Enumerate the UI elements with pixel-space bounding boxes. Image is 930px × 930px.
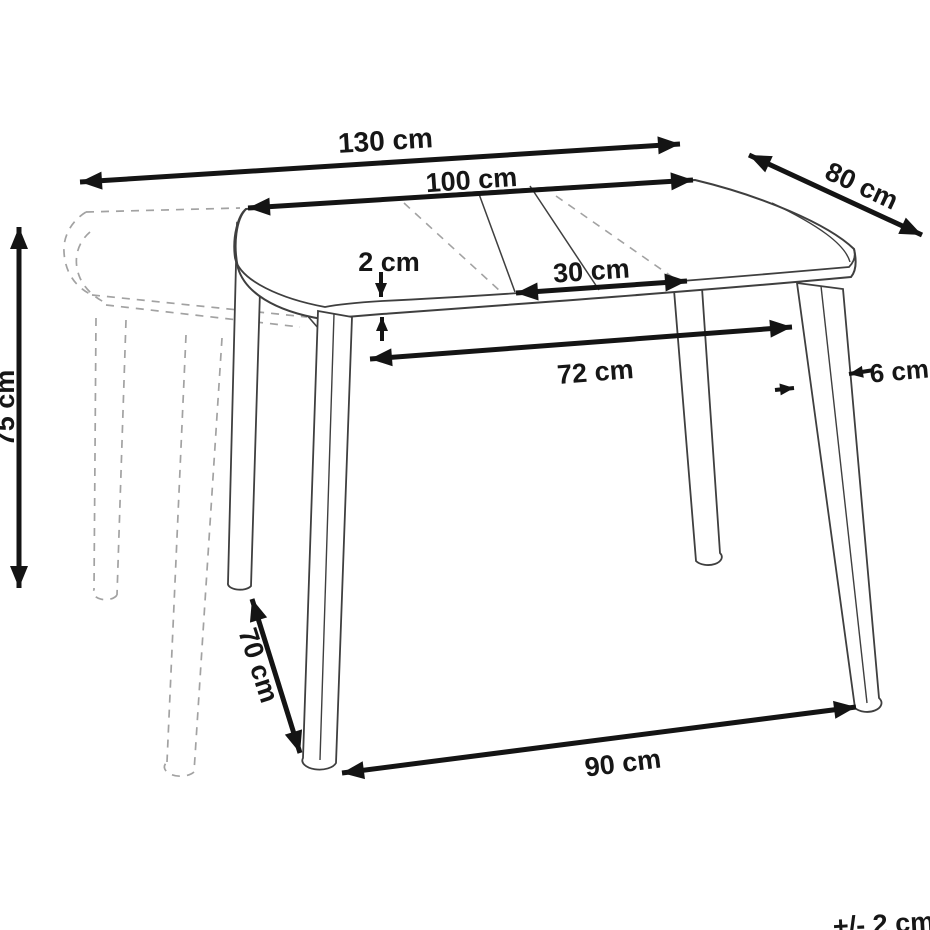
ghost-front-left-leg: [164, 335, 222, 776]
label-130cm: 130 cm: [337, 122, 434, 159]
label-100cm: 100 cm: [425, 162, 518, 198]
label-75cm: 75 cm: [0, 370, 20, 447]
label-70cm: 70 cm: [232, 624, 284, 706]
rear-right-leg: [674, 288, 722, 565]
label-90cm: 90 cm: [583, 744, 663, 783]
label-6cm: 6 cm: [868, 354, 930, 389]
label-72cm: 72 cm: [556, 354, 635, 390]
diagram-canvas: 130 cm 100 cm 80 cm 2 cm 30 cm 72 cm 6 c…: [0, 0, 930, 930]
tolerance-note: +/- 2 cm: [832, 906, 930, 930]
arrow-6cm-right: [775, 388, 794, 390]
ghost-left-end-rim: [76, 232, 106, 303]
label-2cm: 2 cm: [358, 247, 420, 277]
table-dimensions-diagram: 130 cm 100 cm 80 cm 2 cm 30 cm 72 cm 6 c…: [0, 0, 930, 930]
arrow-72cm: [370, 327, 792, 359]
front-right-leg: [797, 283, 881, 712]
front-left-leg: [302, 311, 352, 770]
ghost-back-edge: [86, 208, 240, 212]
ghost-front-rim: [106, 305, 300, 327]
label-30cm: 30 cm: [552, 253, 630, 288]
ghost-rear-left-leg: [93, 318, 126, 600]
ghost-left-end: [64, 212, 92, 295]
